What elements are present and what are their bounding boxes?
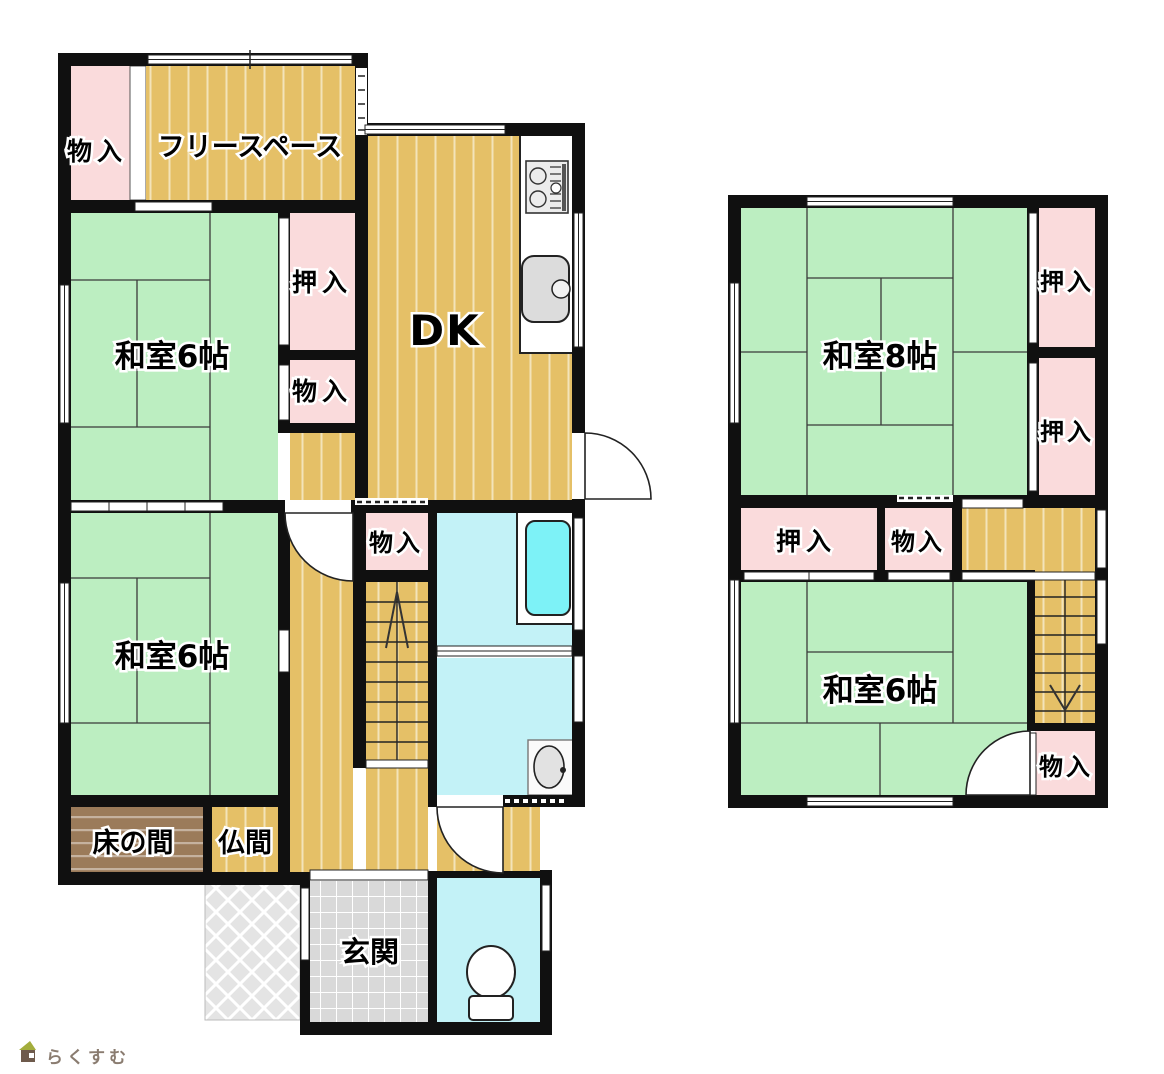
kitchen-counter xyxy=(520,136,572,353)
label-oshiire-left-2f: 押入 xyxy=(776,527,836,556)
label-storage-center: 物入 xyxy=(369,529,423,557)
hallway-lower xyxy=(366,768,428,872)
label-storage-tl: 物入 xyxy=(67,137,127,166)
porch xyxy=(205,878,300,1020)
floor-plan: 物入 フリースペース 和室6帖 押入 物入 DK 和室6帖 物入 床の間 仏間 … xyxy=(0,0,1164,1074)
label-storage-mid-1f: 物入 xyxy=(292,377,352,406)
floor-plan-canvas: 物入 フリースペース 和室6帖 押入 物入 DK 和室6帖 物入 床の間 仏間 … xyxy=(0,0,1164,1074)
label-butsuma: 仏間 xyxy=(218,828,272,859)
stove-icon xyxy=(526,161,568,213)
label-tokonoma: 床の間 xyxy=(93,827,174,859)
label-genkan: 玄関 xyxy=(341,935,399,969)
door-arc-backdoor xyxy=(585,433,651,499)
room-storage-top-left xyxy=(71,66,130,200)
house-icon xyxy=(19,1041,36,1062)
label-oshiire-mid-2f: 押入 xyxy=(1040,418,1094,446)
label-oshiire-1f: 押入 xyxy=(292,268,352,297)
label-storage-mid-2f: 物入 xyxy=(891,528,945,556)
label-dk: DK xyxy=(409,306,480,355)
washbasin-icon xyxy=(528,740,577,795)
label-storage-br-2f: 物入 xyxy=(1039,753,1093,781)
second-floor: 和室8帖 押入 押入 押入 物入 和室6帖 物入 xyxy=(728,195,1108,808)
sliding-door xyxy=(130,66,146,200)
label-washitsu6-2f: 和室6帖 xyxy=(823,673,938,709)
bathtub-icon xyxy=(517,512,579,624)
label-washitsu8: 和室8帖 xyxy=(823,339,938,375)
sink-icon xyxy=(522,256,570,322)
first-floor: 物入 フリースペース 和室6帖 押入 物入 DK 和室6帖 物入 床の間 仏間 … xyxy=(58,50,651,1035)
logo-text: らくすむ xyxy=(46,1048,130,1068)
label-oshiire-top-2f: 押入 xyxy=(1040,268,1094,296)
label-washitsu-upper: 和室6帖 xyxy=(115,339,230,375)
logo: らくすむ xyxy=(19,1041,130,1068)
label-washitsu-lower: 和室6帖 xyxy=(115,639,230,675)
toilet-icon xyxy=(467,946,515,1020)
label-free-space: フリースペース xyxy=(158,132,342,163)
hallway-2f xyxy=(962,508,1095,573)
